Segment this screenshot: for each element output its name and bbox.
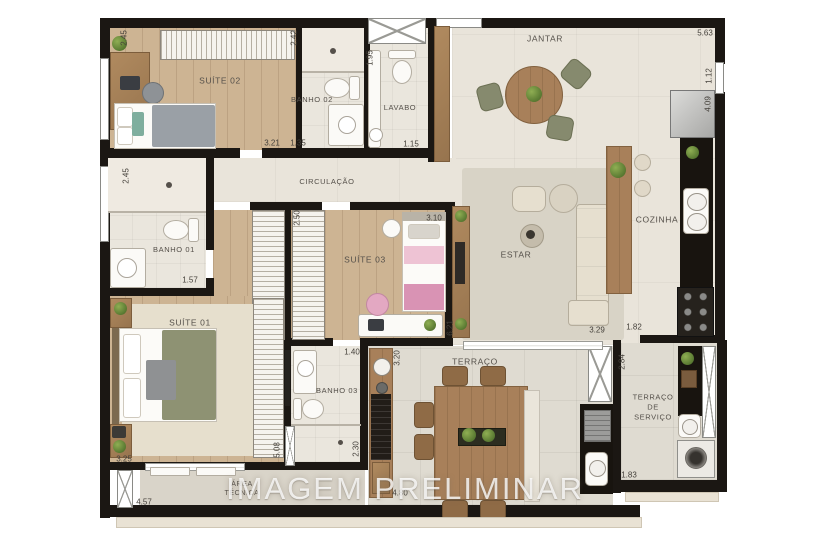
label-terraco-servico: TERRAÇO DE SERVIÇO xyxy=(633,392,674,421)
label-banho03: BANHO 03 xyxy=(316,386,358,396)
dim-estar-height: 6.21 xyxy=(446,320,455,336)
wall-circulacao-b xyxy=(350,202,455,210)
slab-bottom xyxy=(116,517,642,528)
chair-terraco-1 xyxy=(442,366,468,386)
window-bottom-left xyxy=(117,470,133,508)
dim-lavabo-width: 1.15 xyxy=(403,140,419,149)
chair-suite03 xyxy=(366,293,389,316)
label-estar: ESTAR xyxy=(501,249,532,260)
throw-suite01 xyxy=(146,360,176,400)
window-servico xyxy=(702,346,716,438)
plant-counter-cozinha xyxy=(686,146,699,159)
dim-suite01-height: 5.08 xyxy=(273,442,282,458)
shower-glass-banho03 xyxy=(291,424,361,426)
label-suite02: SUÍTE 02 xyxy=(199,75,241,86)
dim-banho02-width: 1.35 xyxy=(290,139,306,148)
pillow-suite02-b xyxy=(117,127,133,145)
shower-head-banho02 xyxy=(330,48,336,54)
tv-suite01 xyxy=(285,350,290,406)
window-banho03 xyxy=(285,426,295,466)
plant-console-top xyxy=(455,210,467,222)
plant-servico xyxy=(681,352,694,365)
label-suite03: SUÍTE 03 xyxy=(344,254,386,265)
condenser-1 xyxy=(150,467,190,476)
shower-head-banho01 xyxy=(166,182,172,188)
blanket-suite02 xyxy=(152,105,215,147)
dim-area-tecnica-width: 4.57 xyxy=(136,498,152,507)
dim-suite03-width: 3.10 xyxy=(426,214,442,223)
plant-suite01-top xyxy=(114,302,127,315)
chair-terraco-2 xyxy=(480,366,506,386)
shower-glass-banho01 xyxy=(108,211,206,213)
shower-banho01 xyxy=(108,158,206,212)
chair-terraco-6 xyxy=(414,434,434,460)
bbq-sink-terraco xyxy=(373,358,391,376)
bbq-pot-terraco xyxy=(376,382,388,394)
pillow-suite01-b xyxy=(123,378,141,418)
plant-desk-suite03 xyxy=(424,319,436,331)
plant-island xyxy=(610,162,626,178)
basin-lavabo xyxy=(369,128,383,142)
pillow-suite03 xyxy=(408,224,440,239)
dim-terraco-height: 3.20 xyxy=(393,350,402,366)
decor-coffee-table xyxy=(526,230,535,239)
sink-basin-2 xyxy=(687,213,707,231)
basin-banho02 xyxy=(338,116,356,134)
wardrobe-suite02 xyxy=(160,30,295,60)
toilet-tank-banho03 xyxy=(293,398,302,420)
wall-right-servico xyxy=(717,340,727,492)
armchair-estar xyxy=(512,186,546,212)
label-terraco: TERRAÇO xyxy=(452,356,498,367)
toilet-bowl-banho01 xyxy=(163,220,189,240)
toilet-bowl-banho03 xyxy=(302,399,324,419)
dim-suite02-height: 2.45 xyxy=(120,30,129,46)
tray-suite01 xyxy=(112,426,126,438)
washer-door-servico xyxy=(685,447,707,469)
laptop-suite02 xyxy=(120,76,140,90)
toilet-tank-lavabo xyxy=(388,50,416,59)
wall-right-upper xyxy=(715,18,725,64)
window-lavabo xyxy=(368,18,426,44)
sofa-chaise-estar xyxy=(568,300,609,326)
blanket-suite03-pink xyxy=(404,284,444,310)
toilet-bowl-lavabo xyxy=(392,60,412,84)
box-servico xyxy=(681,370,697,388)
dim-servico-height: 2.84 xyxy=(618,354,627,370)
plant-suite01-bottom xyxy=(113,440,126,453)
basin-banho03 xyxy=(297,360,314,377)
floor-plan: SUÍTE 02 BANHO 02 LAVABO JANTAR CIRCULAÇ… xyxy=(0,0,838,554)
dim-suite01-width: 3.25 xyxy=(116,455,132,464)
planter-plant-2 xyxy=(482,429,495,442)
dim-suite02-width: 3.21 xyxy=(264,139,280,148)
entry-wood-panel xyxy=(434,26,450,162)
plant-console-bottom xyxy=(455,318,467,330)
headboard-suite01 xyxy=(112,328,119,424)
dim-cozinha-height: 4.09 xyxy=(704,96,713,112)
dim-banho03-height: 2.30 xyxy=(352,441,361,457)
side-table-suite03 xyxy=(382,219,401,238)
sink-basin-terraco xyxy=(589,460,606,477)
planter-plant-1 xyxy=(462,428,476,442)
tank-basin-servico xyxy=(682,419,698,435)
wall-circulacao-a xyxy=(250,202,322,210)
dim-banho03-width: 1.40 xyxy=(344,348,360,357)
closet-rack-suite01 xyxy=(253,298,284,458)
chair-terraco-5 xyxy=(414,402,434,428)
closet-rack-2 xyxy=(292,210,325,340)
cushion-suite02 xyxy=(132,112,144,136)
dim-lavabo-height: 1.95 xyxy=(366,50,375,66)
dim-servico-width: 1.83 xyxy=(621,471,637,480)
cooktop-cozinha xyxy=(677,287,714,337)
label-cozinha: COZINHA xyxy=(636,214,678,225)
window-right xyxy=(715,62,724,94)
window-terraco xyxy=(588,346,612,402)
grill-terraco xyxy=(371,394,391,460)
stool-2 xyxy=(634,180,651,197)
dim-window-right: 1.12 xyxy=(705,68,714,84)
glass-door-estar-terraco xyxy=(463,341,603,350)
dim-banho01-width: 1.57 xyxy=(182,276,198,285)
watermark: IMAGEM PRELIMINAR xyxy=(226,471,584,507)
toilet-tank-banho01 xyxy=(188,218,199,242)
plant-jantar xyxy=(526,86,542,102)
laptop-suite03 xyxy=(368,319,384,331)
wall-suite02-bottom-b xyxy=(262,148,432,158)
wall-servico-bottom xyxy=(621,480,727,492)
dim-estar-width: 3.29 xyxy=(589,326,605,335)
pillow-suite01-a xyxy=(123,334,141,374)
label-lavabo: LAVABO xyxy=(384,103,417,113)
label-jantar: JANTAR xyxy=(527,33,563,44)
wall-right-mid xyxy=(715,92,725,340)
wall-suite02-bottom-a xyxy=(108,148,240,158)
wall-banho01-bottom xyxy=(108,288,214,296)
blanket-suite03-light xyxy=(404,246,444,264)
toilet-tank-banho02 xyxy=(349,76,360,100)
label-circulacao: CIRCULAÇÃO xyxy=(299,177,354,187)
label-suite01: SUÍTE 01 xyxy=(169,317,211,328)
basin-banho01 xyxy=(117,258,137,278)
shower-drain-banho03 xyxy=(338,440,343,445)
dim-cozinha-width: 1.82 xyxy=(626,323,642,332)
chair-jantar-3 xyxy=(545,114,575,142)
label-banho02: BANHO 02 xyxy=(291,95,333,105)
wall-banho03-right xyxy=(360,346,368,466)
wall-banho01-right-a xyxy=(206,158,214,250)
slab-servico xyxy=(625,492,719,502)
grill-terraco-right xyxy=(584,410,611,442)
shower-glass-banho02 xyxy=(302,71,364,73)
dim-jantar-width: 5.63 xyxy=(697,29,713,38)
label-banho01: BANHO 01 xyxy=(153,245,195,255)
wall-suite03-bottom-b xyxy=(360,338,445,346)
pillow-suite02-a xyxy=(117,107,133,127)
stool-1 xyxy=(634,154,651,171)
sink-basin-1 xyxy=(687,193,707,211)
pouf-estar xyxy=(549,184,578,213)
wall-banho03-bottom xyxy=(290,462,368,470)
dim-banho01-height: 2.45 xyxy=(122,168,131,184)
dim-closet-height: 2.50 xyxy=(293,210,302,226)
window-suite02 xyxy=(100,58,109,140)
dim-banho02-height: 2.42 xyxy=(290,30,299,46)
tv-estar xyxy=(455,242,465,284)
desk-chair-suite02 xyxy=(142,82,164,104)
